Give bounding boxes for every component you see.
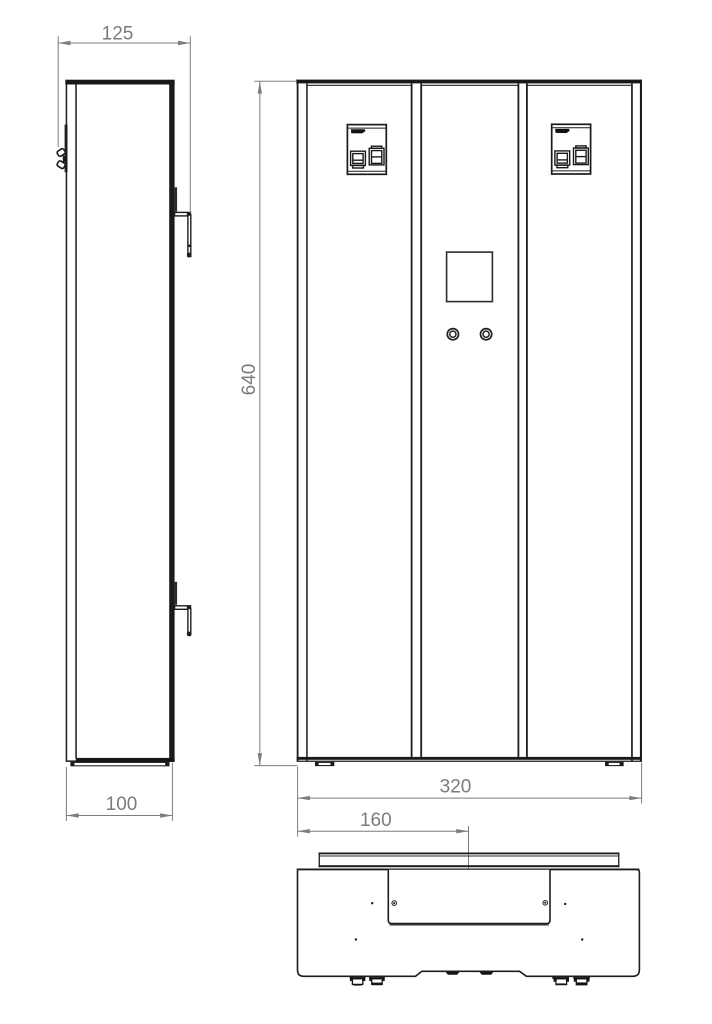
svg-text:100: 100 [106, 794, 138, 815]
svg-text:320: 320 [440, 777, 472, 798]
svg-text:640: 640 [239, 364, 260, 396]
svg-text:160: 160 [360, 810, 392, 831]
svg-text:125: 125 [102, 24, 134, 45]
